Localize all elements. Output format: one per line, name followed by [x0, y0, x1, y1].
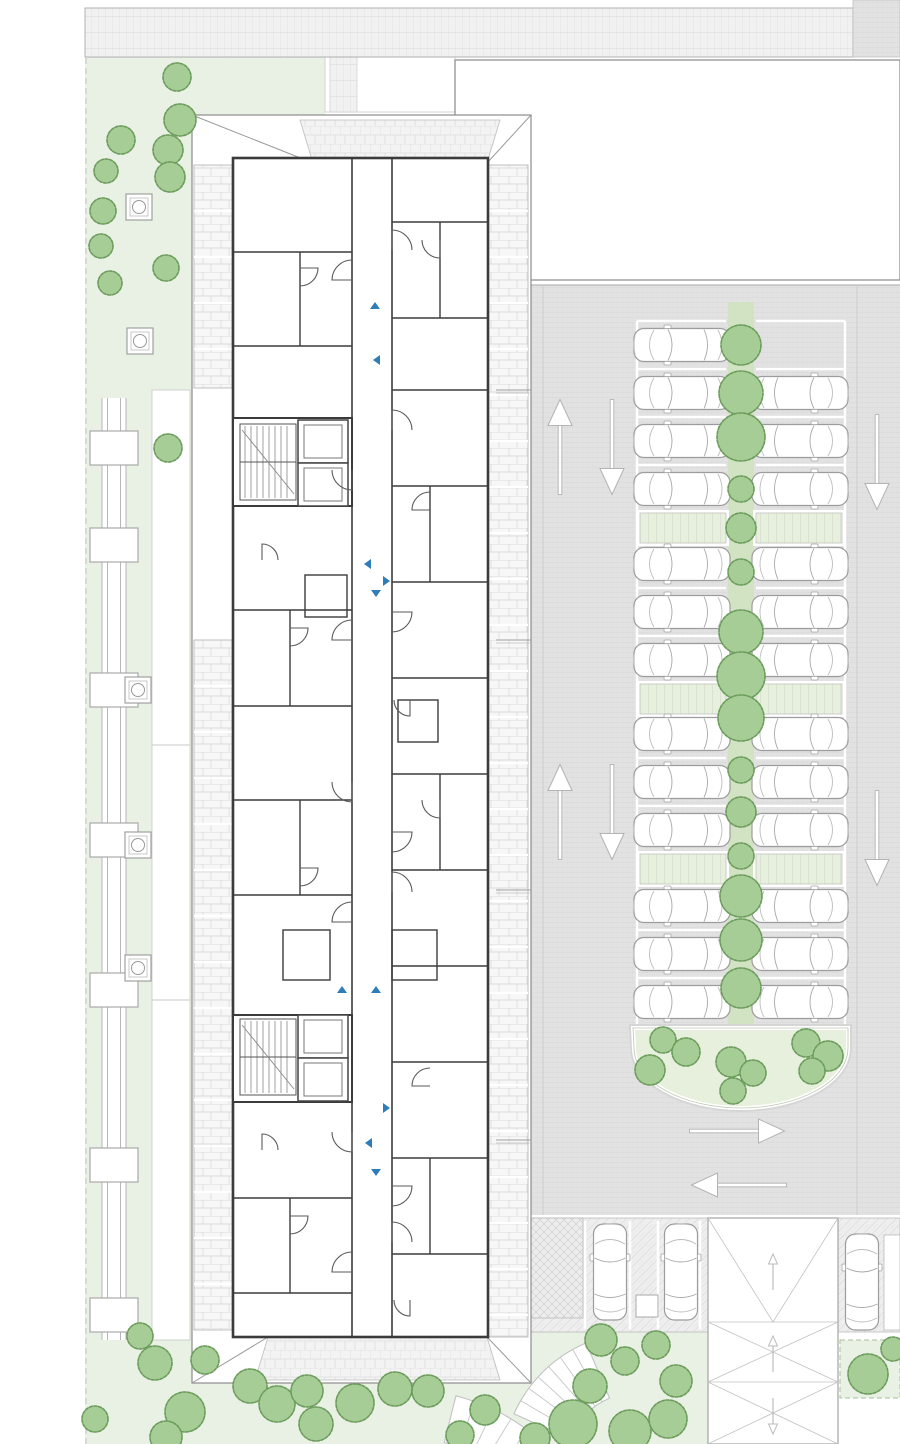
- car: [634, 544, 730, 584]
- drain-grate: [134, 335, 147, 348]
- tree: [98, 271, 122, 295]
- tree: [154, 434, 182, 462]
- stall-divider: [637, 587, 726, 589]
- site-plan: Residential site plan - ground floor apa…: [0, 0, 900, 1444]
- car: [752, 810, 848, 850]
- tree: [720, 919, 762, 961]
- tree: [728, 757, 754, 783]
- car: [752, 934, 848, 974]
- car: [752, 544, 848, 584]
- car: [634, 886, 730, 926]
- tree: [585, 1324, 617, 1356]
- car: [634, 469, 730, 509]
- garden-path: [152, 390, 190, 1340]
- tree: [728, 843, 754, 869]
- planter: [756, 513, 842, 543]
- car: [752, 714, 848, 754]
- drain-grate: [132, 684, 145, 697]
- tree: [660, 1365, 692, 1397]
- stall-divider: [637, 635, 726, 637]
- tree: [336, 1384, 374, 1422]
- tree: [155, 162, 185, 192]
- stall-divider: [637, 416, 726, 418]
- car: [634, 325, 730, 365]
- car: [752, 762, 848, 802]
- car: [752, 982, 848, 1022]
- car: [634, 982, 730, 1022]
- tree: [549, 1400, 597, 1444]
- asphalt-corner: [853, 0, 900, 57]
- car: [752, 373, 848, 413]
- tree: [89, 234, 113, 258]
- tree: [573, 1369, 607, 1403]
- elevator-shaft: [298, 1015, 348, 1058]
- stall-divider: [756, 368, 845, 370]
- car: [634, 373, 730, 413]
- traffic-arrow-shaft: [610, 765, 614, 834]
- elevator-shaft: [298, 420, 348, 463]
- tree: [649, 1400, 687, 1438]
- balcony-strip-west: [194, 165, 232, 388]
- drain-grate: [132, 839, 145, 852]
- tree: [726, 513, 756, 543]
- car: [634, 934, 730, 974]
- tree: [728, 559, 754, 585]
- tree: [848, 1354, 888, 1394]
- car: [752, 469, 848, 509]
- pergola-pad: [90, 431, 138, 465]
- stall-divider: [637, 929, 726, 931]
- empty-stall-marker: [636, 1295, 658, 1317]
- car: [752, 592, 848, 632]
- roof-terrace-north: [300, 120, 500, 163]
- planter: [756, 854, 842, 884]
- tree: [740, 1060, 766, 1086]
- car: [634, 640, 730, 680]
- tree: [127, 1323, 153, 1349]
- car: [752, 640, 848, 680]
- sidewalk-band: [85, 8, 853, 57]
- car: [634, 810, 730, 850]
- stall-divider: [756, 805, 845, 807]
- tree: [717, 413, 765, 461]
- entry-hatch-strip: [330, 57, 357, 112]
- tree: [412, 1375, 444, 1407]
- tree: [728, 476, 754, 502]
- car: [752, 421, 848, 461]
- tree: [721, 325, 761, 365]
- planter: [640, 684, 726, 714]
- tree: [378, 1372, 412, 1406]
- tree: [719, 610, 763, 654]
- tree: [881, 1337, 900, 1361]
- car: [590, 1224, 630, 1320]
- balcony-strip-east: [488, 165, 528, 1337]
- tree: [82, 1406, 108, 1432]
- stall-divider: [637, 368, 726, 370]
- stall-divider: [756, 635, 845, 637]
- pergola-pad: [90, 1148, 138, 1182]
- tree: [718, 695, 764, 741]
- stall-divider: [756, 977, 845, 979]
- traffic-arrow-shaft: [558, 791, 562, 860]
- tree: [720, 1078, 746, 1104]
- stall-divider: [756, 320, 845, 322]
- stall-divider: [756, 929, 845, 931]
- stall-divider: [637, 757, 726, 759]
- tree: [642, 1331, 670, 1359]
- stall-divider: [637, 320, 726, 322]
- tree: [259, 1386, 295, 1422]
- crosshatch-patch: [531, 1218, 583, 1318]
- exterior-wall: [233, 158, 488, 1337]
- stall-divider: [756, 757, 845, 759]
- tree: [721, 968, 761, 1008]
- site-plan-drawing: [0, 0, 900, 1444]
- stall-pad: [884, 1235, 900, 1330]
- tree: [94, 159, 118, 183]
- tree: [107, 126, 135, 154]
- stall-divider: [637, 805, 726, 807]
- elevator-shaft: [298, 1058, 348, 1101]
- car: [634, 592, 730, 632]
- car: [842, 1234, 882, 1330]
- traffic-arrow-shaft: [558, 426, 562, 495]
- tree: [299, 1407, 333, 1441]
- drain-grate: [132, 962, 145, 975]
- car: [661, 1224, 701, 1320]
- tree: [163, 63, 191, 91]
- drain-grate: [133, 201, 146, 214]
- car: [752, 886, 848, 926]
- pergola-pad: [90, 528, 138, 562]
- traffic-arrow-shaft: [690, 1129, 759, 1133]
- tree: [90, 198, 116, 224]
- traffic-arrow-shaft: [610, 400, 614, 469]
- planter: [640, 513, 726, 543]
- tree: [635, 1055, 665, 1085]
- tree: [138, 1346, 172, 1380]
- traffic-arrow-shaft: [718, 1183, 787, 1187]
- tree: [719, 371, 763, 415]
- tree: [153, 255, 179, 281]
- balcony-strip-west: [194, 640, 232, 1330]
- car: [634, 762, 730, 802]
- stall-divider: [637, 977, 726, 979]
- tree: [191, 1346, 219, 1374]
- planter: [640, 854, 726, 884]
- layer-apartment-building: [192, 115, 531, 1383]
- tree: [720, 875, 762, 917]
- roof-terrace-south: [255, 1337, 500, 1380]
- tree: [726, 797, 756, 827]
- car: [634, 714, 730, 754]
- stall-divider: [756, 464, 845, 466]
- traffic-arrow-shaft: [875, 791, 879, 860]
- tree: [470, 1395, 500, 1425]
- tree: [446, 1421, 474, 1444]
- stall-divider: [756, 416, 845, 418]
- planter: [756, 684, 842, 714]
- tree: [672, 1038, 700, 1066]
- stall-divider: [756, 587, 845, 589]
- traffic-arrow-shaft: [875, 415, 879, 484]
- car: [634, 421, 730, 461]
- tree: [164, 104, 196, 136]
- tree: [611, 1347, 639, 1375]
- tree: [153, 135, 183, 165]
- tree: [291, 1375, 323, 1407]
- stall-divider: [637, 464, 726, 466]
- tree: [799, 1058, 825, 1084]
- elevator-shaft: [298, 463, 348, 506]
- tree: [717, 652, 765, 700]
